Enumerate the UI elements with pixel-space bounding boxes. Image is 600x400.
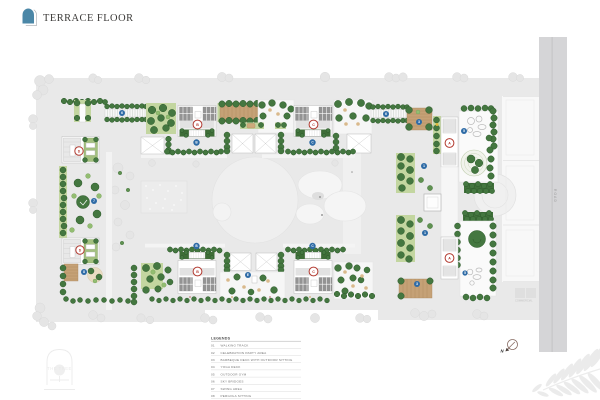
svg-text:B: B [196, 270, 199, 274]
svg-text:LEGENDS: LEGENDS [211, 337, 231, 341]
svg-text:COMMERCIAL: COMMERCIAL [515, 299, 533, 303]
svg-text:02: 02 [211, 351, 215, 355]
svg-text:3: 3 [416, 282, 418, 286]
svg-text:08: 08 [211, 394, 215, 398]
svg-text:WALKING TRACK: WALKING TRACK [221, 344, 250, 348]
svg-text:06: 06 [211, 380, 215, 384]
svg-text:1: 1 [423, 164, 425, 168]
svg-text:3: 3 [418, 120, 420, 124]
svg-text:A: A [448, 142, 451, 146]
svg-text:CELEBRATION PARTY AREA: CELEBRATION PARTY AREA [221, 351, 268, 355]
svg-text:BARBEQUE DECK WITH OUTDOOR SIT: BARBEQUE DECK WITH OUTDOOR SITTING [221, 358, 293, 362]
svg-text:5: 5 [463, 129, 465, 133]
svg-text:04: 04 [211, 365, 215, 369]
svg-text:E: E [247, 273, 249, 277]
svg-text:1: 1 [424, 231, 426, 235]
svg-text:5: 5 [464, 271, 466, 275]
svg-text:6: 6 [385, 112, 387, 116]
svg-text:YOGA DECK: YOGA DECK [221, 365, 242, 369]
svg-text:03: 03 [211, 358, 215, 362]
svg-text:B: B [196, 123, 199, 127]
svg-text:7: 7 [93, 199, 95, 203]
svg-text:07: 07 [211, 387, 215, 391]
svg-text:01: 01 [211, 344, 215, 348]
svg-text:6: 6 [121, 111, 123, 115]
svg-text:05: 05 [211, 372, 215, 376]
svg-text:ROAD: ROAD [553, 189, 557, 203]
svg-text:TERRACE FLOOR: TERRACE FLOOR [43, 13, 134, 24]
svg-text:SWING AREA: SWING AREA [221, 387, 243, 391]
svg-text:C: C [312, 123, 315, 127]
svg-text:C: C [312, 270, 315, 274]
svg-text:A: A [448, 257, 451, 261]
svg-text:OUTDOOR GYM: OUTDOOR GYM [221, 372, 247, 376]
svg-text:SKY BRIDGES: SKY BRIDGES [221, 380, 244, 384]
svg-text:PERGOLA SITTING: PERGOLA SITTING [221, 394, 252, 398]
svg-text:8: 8 [83, 270, 85, 274]
svg-text:THE TREE: THE TREE [47, 366, 72, 371]
